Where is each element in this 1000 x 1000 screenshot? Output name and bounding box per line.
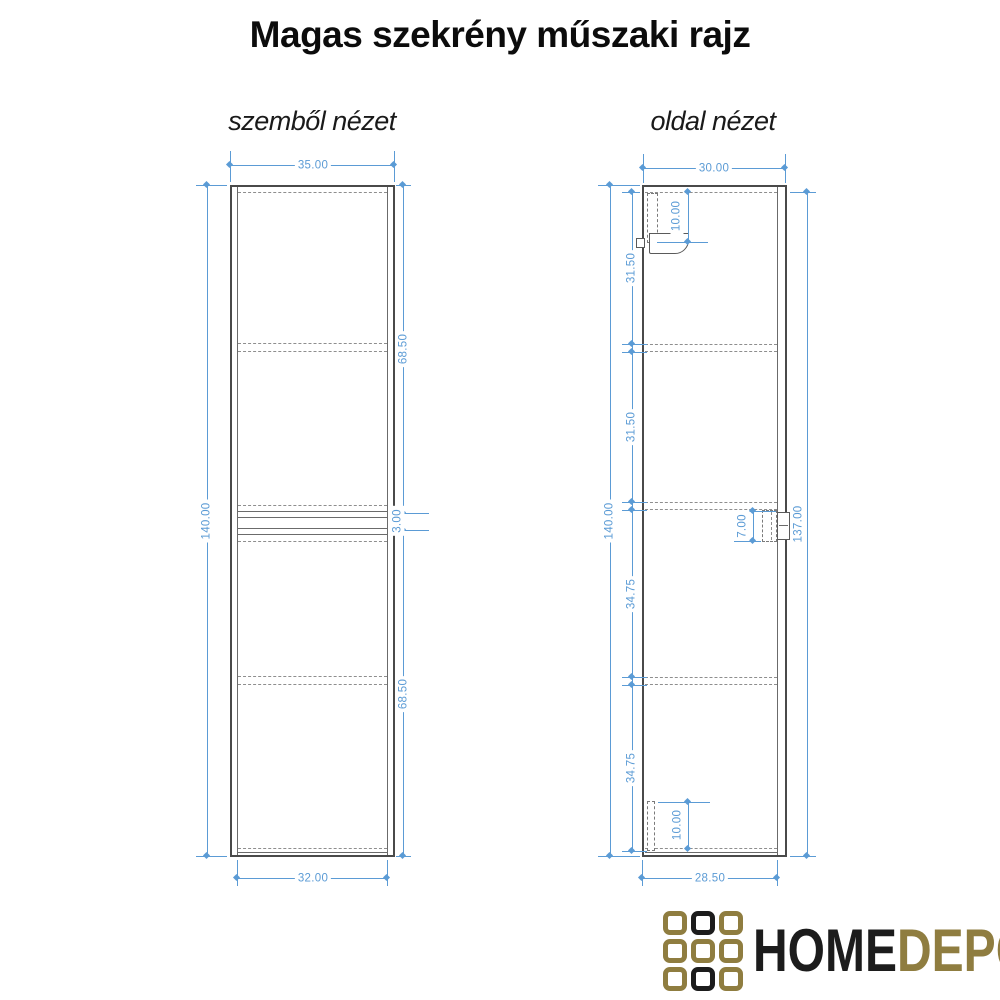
side-shelf3-hidden-bottom <box>645 684 777 685</box>
logo-square-gold <box>691 939 715 963</box>
side-bottom-panel-line <box>645 852 777 853</box>
side-dim-section-1: 31.50 <box>626 250 639 286</box>
side-mid-bracket-inner-line <box>771 512 772 540</box>
dim-arrow <box>628 498 635 505</box>
dim-arrow <box>781 164 788 171</box>
dim-arrow <box>233 874 240 881</box>
side-shelf1-hidden-bottom <box>645 351 777 352</box>
logo-square-black <box>691 911 715 935</box>
side-dim-bracket-top: 10.00 <box>671 198 684 234</box>
side-top-bracket-flap <box>649 233 689 254</box>
front-bottom-hidden-line <box>238 848 387 849</box>
side-dim-depth-bottom: 28.50 <box>692 873 728 886</box>
side-dim-bracket-bottom-line <box>688 802 689 849</box>
front-shelf1-hidden-top <box>238 343 387 344</box>
dim-arrow <box>203 852 210 859</box>
logo-text-depo: DEPO <box>897 917 1000 984</box>
front-view-label: szemből nézet <box>182 106 442 137</box>
dim-arrow <box>628 188 635 195</box>
side-dim-section-4: 34.75 <box>626 750 639 786</box>
side-back-panel-notch <box>777 512 790 540</box>
logo-text-home: HOME <box>753 917 897 984</box>
side-shelf2-hidden-top <box>645 502 777 503</box>
front-dim-left-ext-top <box>196 185 227 186</box>
logo-square-gold <box>719 967 743 991</box>
front-bottom-panel-line <box>238 852 387 853</box>
side-dim-bracket-top-leader <box>657 242 708 243</box>
dim-arrow <box>628 847 635 854</box>
side-dim-height-back: 137.00 <box>793 503 806 546</box>
dim-arrow <box>399 852 406 859</box>
side-dim-section-tick <box>622 851 647 852</box>
side-dim-left-ext-bottom <box>598 856 640 857</box>
side-shelf2-hidden-bottom <box>645 509 777 510</box>
front-cabinet-outline <box>230 185 395 857</box>
side-dim-right-line <box>807 192 808 857</box>
side-view-label: oldal nézet <box>588 106 838 137</box>
logo-square-gold <box>719 939 743 963</box>
side-mid-bracket-hidden <box>762 510 777 542</box>
front-dim-bottom-ext-right <box>387 860 388 886</box>
logo-grid-icon <box>663 911 743 991</box>
dim-arrow <box>803 852 810 859</box>
front-dim-door-gap: 3.00 <box>392 506 405 536</box>
front-dim-door-upper: 68.50 <box>398 331 411 367</box>
logo-square-gold <box>663 967 687 991</box>
front-right-panel-inner-line <box>387 187 388 855</box>
front-shelf2-hidden-bottom <box>238 684 387 685</box>
logo-square-black <box>691 967 715 991</box>
side-dim-depth-top: 30.00 <box>696 163 732 176</box>
front-dim-bottom-ext-left <box>237 860 238 886</box>
logo-wordmark: HOMEDEPO <box>753 911 1000 991</box>
side-dim-section-tick <box>622 510 647 511</box>
logo-square-gold <box>719 911 743 935</box>
side-dim-section-tick <box>622 352 647 353</box>
side-top-hidden-line <box>645 192 777 193</box>
front-mid-hidden-top <box>238 505 387 506</box>
front-shelf1-hidden-bottom <box>238 351 387 352</box>
dim-arrow <box>606 181 613 188</box>
side-dim-left-ext-top <box>598 185 640 186</box>
dim-arrow <box>773 874 780 881</box>
side-bottom-hidden-line <box>645 848 777 849</box>
dim-arrow <box>628 506 635 513</box>
dim-arrow <box>203 181 210 188</box>
front-dim-width-bottom: 32.00 <box>295 873 331 886</box>
side-dim-section-tick <box>622 677 647 678</box>
side-dim-bottom-ext-left <box>642 860 643 886</box>
side-dim-bracket-mid: 7.00 <box>737 511 750 541</box>
front-mid-hidden-bottom <box>238 541 387 542</box>
side-dim-bracket-mid-line <box>753 511 754 541</box>
side-dim-section-tick <box>622 344 647 345</box>
front-dim-width-top: 35.00 <box>295 160 331 173</box>
dim-arrow <box>628 348 635 355</box>
front-upper-door-bottom-edge <box>238 511 387 512</box>
side-dim-bracket-mid-leader-bottom <box>734 541 761 542</box>
side-bottom-bracket-hidden <box>647 801 655 851</box>
front-dim-height-total: 140.00 <box>201 500 214 543</box>
dim-arrow <box>226 161 233 168</box>
dim-arrow <box>606 852 613 859</box>
side-dim-section-2: 31.50 <box>626 409 639 445</box>
side-shelf1-hidden-top <box>645 344 777 345</box>
dim-arrow <box>383 874 390 881</box>
dim-arrow <box>390 161 397 168</box>
homedepo-logo: HOMEDEPO <box>663 911 1000 991</box>
page-title: Magas szekrény műszaki rajz <box>0 14 1000 56</box>
side-dim-height-total: 140.00 <box>604 500 617 543</box>
front-mid-shelf-bottom-edge <box>238 528 387 529</box>
front-left-panel-inner-line <box>237 187 238 855</box>
side-shelf3-hidden-top <box>645 677 777 678</box>
dim-arrow <box>628 673 635 680</box>
logo-square-gold <box>663 939 687 963</box>
logo-square-gold <box>663 911 687 935</box>
front-dim-door-lower: 68.50 <box>398 676 411 712</box>
dim-arrow <box>639 164 646 171</box>
side-dim-section-tick <box>622 685 647 686</box>
front-mid-shelf-top-edge <box>238 517 387 518</box>
side-dim-section-3: 34.75 <box>626 576 639 612</box>
side-dim-section-tick <box>622 502 647 503</box>
technical-drawing-page: Magas szekrény műszaki rajz szemből néze… <box>0 0 1000 1000</box>
side-top-bracket-hook <box>636 238 645 248</box>
front-top-hidden-line <box>238 192 387 193</box>
dim-arrow <box>628 681 635 688</box>
dim-arrow <box>399 181 406 188</box>
dim-arrow <box>638 874 645 881</box>
side-dim-bracket-bottom: 10.00 <box>672 807 685 843</box>
dim-arrow <box>628 340 635 347</box>
dim-arrow <box>803 188 810 195</box>
side-back-panel-notch-groove <box>779 525 788 526</box>
front-lower-door-top-edge <box>238 534 387 535</box>
front-dim-left-ext-bottom <box>196 856 227 857</box>
front-shelf2-hidden-top <box>238 676 387 677</box>
side-dim-bottom-ext-right <box>777 860 778 886</box>
side-dim-bracket-top-line <box>688 192 689 242</box>
